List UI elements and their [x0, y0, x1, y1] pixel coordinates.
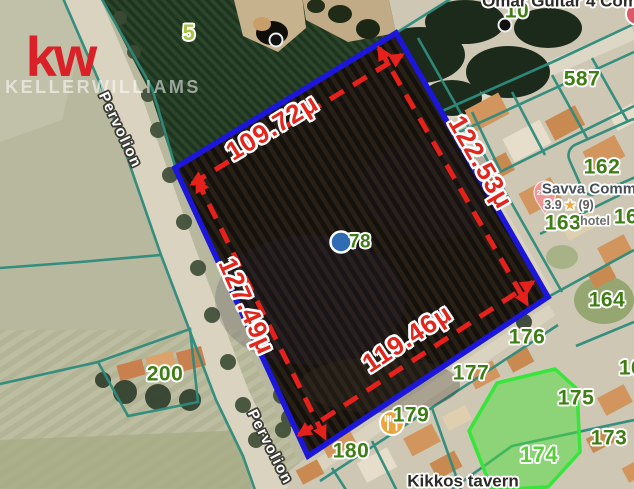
star-icon: ★ [565, 199, 576, 211]
review-count: (9) [578, 199, 593, 212]
parcel-label-179: 179 [393, 405, 430, 426]
parcel-label-164: 164 [589, 290, 626, 311]
parcel-label-180: 180 [333, 441, 370, 462]
poi-label-omar[interactable]: Omar Guitar 4 Com [482, 0, 634, 10]
parcel-label-176: 176 [509, 327, 546, 348]
rating-value: 3.9 [544, 199, 561, 212]
parcel-label-16-partial: 16 [614, 207, 634, 228]
map-layers: 2.8M [0, 0, 634, 489]
parcel-label-200: 200 [147, 364, 184, 385]
satellite-map-canvas[interactable]: 2.8M kw KELLERWILLIAMS 109.72μ 122.53μ 1… [0, 0, 634, 489]
parcel-label-587: 587 [564, 69, 601, 90]
poi-rating-savva[interactable]: 3.9 ★ (9) [544, 199, 593, 212]
parcel-label-78: 78 [349, 233, 371, 252]
poi-category-hotel: hotel [580, 215, 610, 228]
parcel-label-5: 5 [183, 22, 196, 44]
map-node-marker [270, 34, 283, 47]
parcel-label-174: 174 [520, 444, 558, 466]
poi-label-kikkos-tavern[interactable]: Kikkos tavern [407, 473, 519, 489]
parcel-label-175: 175 [558, 388, 595, 409]
parcel-label-162: 162 [584, 157, 621, 178]
parcel-label-173: 173 [591, 428, 628, 449]
parcel-label-163: 163 [545, 213, 582, 234]
poi-label-savva[interactable]: Savva Comm [542, 182, 634, 197]
parcel-label-16-partial-2: 16 [619, 358, 634, 379]
parcel-label-177: 177 [453, 363, 490, 384]
